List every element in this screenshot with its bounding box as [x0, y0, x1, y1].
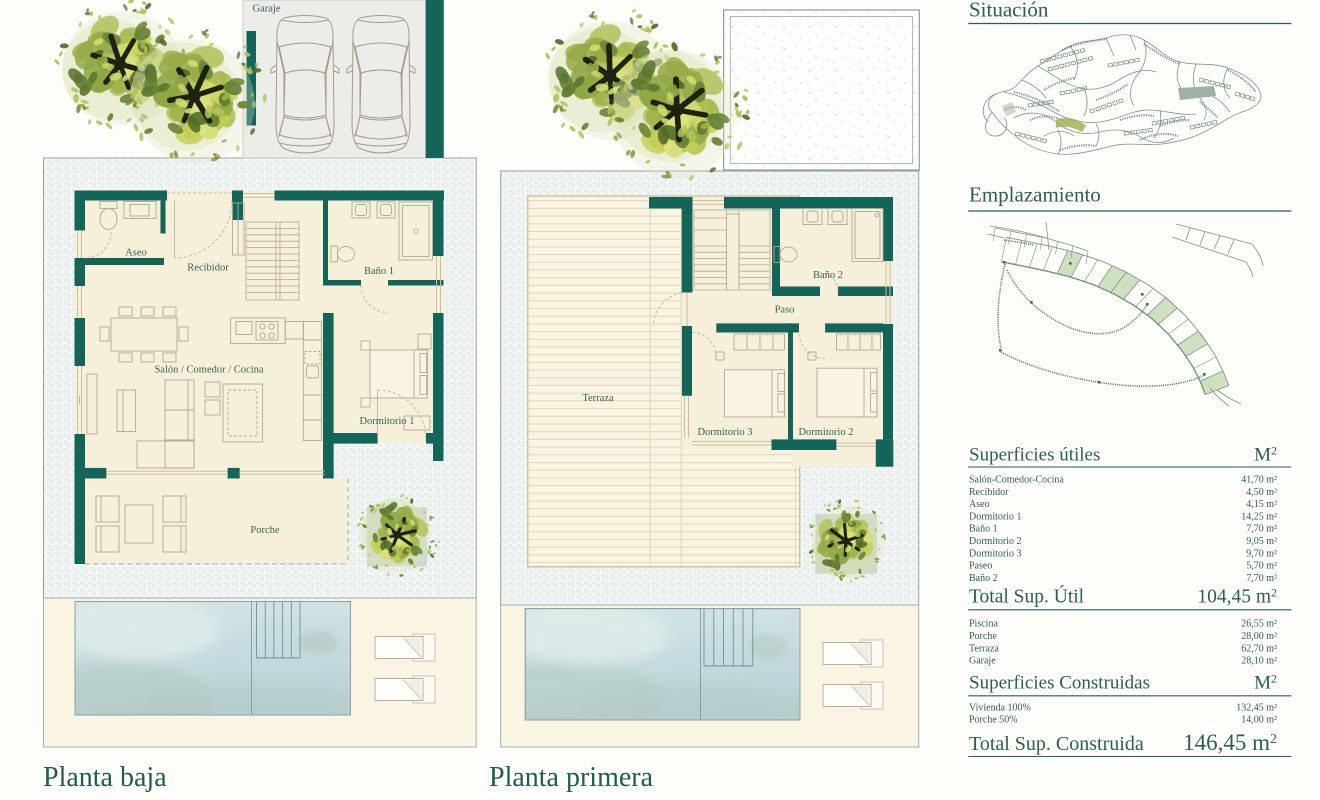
- svg-text:Aseo: Aseo: [125, 248, 147, 259]
- svg-text:Baño 1: Baño 1: [364, 266, 394, 277]
- svg-text:Total Sup. Construida: Total Sup. Construida: [969, 733, 1144, 755]
- svg-text:9,70 m²: 9,70 m²: [1246, 548, 1277, 559]
- svg-text:Garaje: Garaje: [253, 4, 281, 15]
- svg-text:Planta primera: Planta primera: [489, 762, 654, 793]
- svg-text:4,15 m²: 4,15 m²: [1246, 499, 1277, 510]
- svg-text:26,55 m²: 26,55 m²: [1241, 619, 1277, 630]
- svg-text:Porche: Porche: [969, 631, 997, 642]
- svg-text:Recibidor: Recibidor: [187, 263, 229, 274]
- svg-text:Planta baja: Planta baja: [43, 762, 167, 793]
- svg-text:104,45 m2: 104,45 m2: [1197, 586, 1277, 608]
- svg-text:28,00 m²: 28,00 m²: [1241, 631, 1277, 642]
- svg-text:132,45 m²: 132,45 m²: [1236, 702, 1277, 713]
- svg-text:7,70 m²: 7,70 m²: [1246, 573, 1277, 584]
- svg-text:M2: M2: [1254, 672, 1277, 694]
- svg-text:Aseo: Aseo: [969, 499, 990, 510]
- svg-text:Paseo: Paseo: [969, 561, 992, 572]
- svg-text:14,00 m²: 14,00 m²: [1241, 715, 1277, 726]
- svg-text:Superficies Construidas: Superficies Construidas: [969, 673, 1150, 694]
- svg-text:Total Sup. Útil: Total Sup. Útil: [969, 586, 1085, 608]
- svg-text:Paso: Paso: [775, 305, 795, 316]
- svg-text:M2: M2: [1254, 444, 1277, 466]
- svg-text:Vivienda 100%: Vivienda 100%: [969, 702, 1031, 713]
- svg-text:Terraza: Terraza: [969, 643, 999, 654]
- svg-text:Salón-Comedor-Cocina: Salón-Comedor-Cocina: [969, 475, 1064, 486]
- svg-text:Baño 1: Baño 1: [969, 524, 998, 535]
- svg-text:Superficies útiles: Superficies útiles: [969, 445, 1100, 466]
- svg-text:62,70 m²: 62,70 m²: [1241, 643, 1277, 654]
- svg-text:28,10 m²: 28,10 m²: [1241, 656, 1277, 667]
- svg-text:41,70 m²: 41,70 m²: [1241, 475, 1277, 486]
- svg-text:Baño 2: Baño 2: [969, 573, 998, 584]
- svg-text:Emplazamiento: Emplazamiento: [969, 183, 1101, 207]
- svg-text:Salón / Comedor / Cocina: Salón / Comedor / Cocina: [154, 365, 263, 376]
- svg-text:Dormitorio 3: Dormitorio 3: [969, 548, 1022, 559]
- svg-text:Dormitorio 1: Dormitorio 1: [969, 511, 1022, 522]
- svg-text:Situación: Situación: [969, 0, 1049, 22]
- svg-text:7,70 m²: 7,70 m²: [1246, 524, 1277, 535]
- svg-text:Dormitorio 3: Dormitorio 3: [697, 427, 752, 438]
- svg-text:Baño 2: Baño 2: [813, 270, 843, 281]
- svg-text:Piscina: Piscina: [969, 619, 998, 630]
- svg-text:Dormitorio 2: Dormitorio 2: [969, 536, 1022, 547]
- svg-text:4,50 m²: 4,50 m²: [1246, 487, 1277, 498]
- svg-text:Recibidor: Recibidor: [969, 487, 1009, 498]
- svg-text:Porche 50%: Porche 50%: [969, 715, 1018, 726]
- svg-text:9,05 m²: 9,05 m²: [1246, 536, 1277, 547]
- svg-text:Dormitorio 2: Dormitorio 2: [798, 427, 853, 438]
- svg-text:Dormitorio 1: Dormitorio 1: [359, 416, 414, 427]
- svg-text:Garaje: Garaje: [969, 656, 996, 667]
- svg-text:14,25 m²: 14,25 m²: [1241, 511, 1277, 522]
- svg-text:146,45 m2: 146,45 m2: [1183, 730, 1277, 755]
- svg-text:5,70 m²: 5,70 m²: [1246, 561, 1277, 572]
- svg-text:Terraza: Terraza: [582, 393, 614, 404]
- svg-text:Porche: Porche: [250, 525, 279, 536]
